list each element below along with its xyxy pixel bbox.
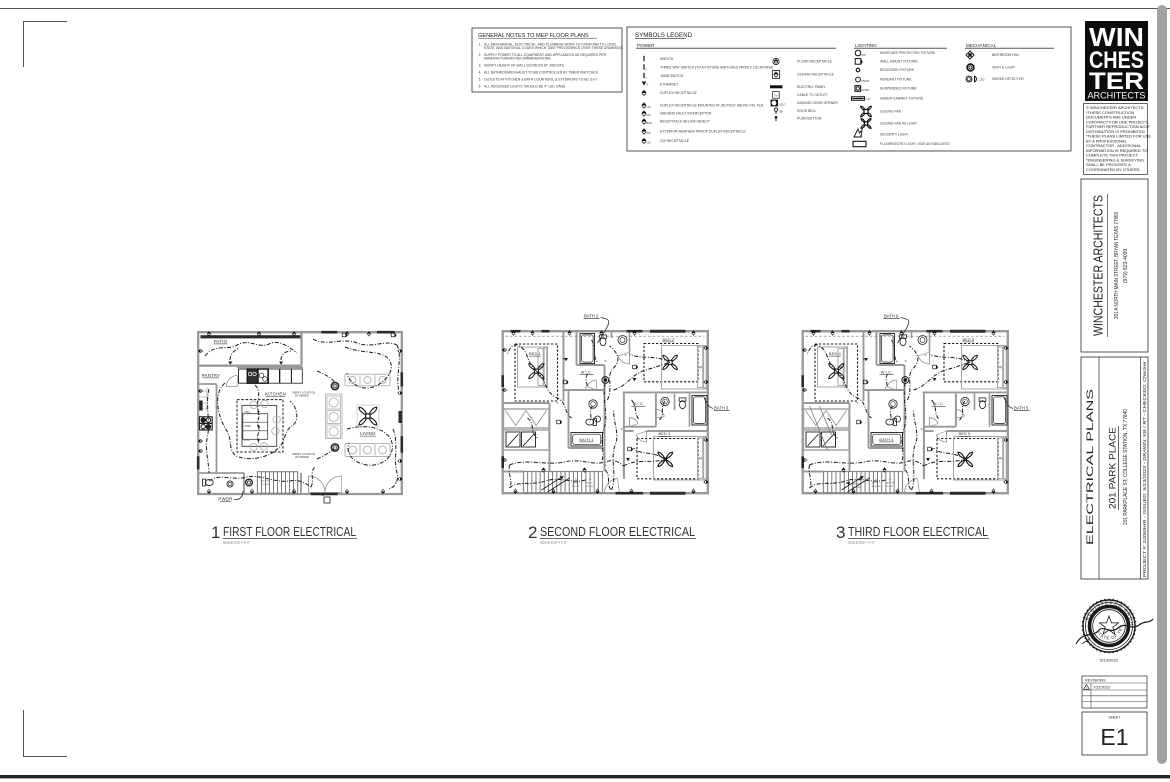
svg-text:BED 3: BED 3 <box>659 432 671 436</box>
svg-text:S: S <box>605 359 607 363</box>
svg-text:ACCESS: ACCESS <box>872 485 881 488</box>
svg-text:FLOOR: FLOOR <box>262 484 270 486</box>
svg-text:4.: 4. <box>479 71 482 75</box>
svg-text:BATH 6: BATH 6 <box>884 314 899 319</box>
svg-text:FLOOR: FLOOR <box>572 486 580 488</box>
svg-text:OUTLETS AT KITCHEN & BATH COUN: OUTLETS AT KITCHEN & BATH COUNTERS, & EX… <box>484 78 598 82</box>
svg-text:ARCHITECTS: ARCHITECTS <box>1088 91 1146 101</box>
svg-text:W/ OWNER: W/ OWNER <box>295 455 309 459</box>
svg-text:BED 2: BED 2 <box>663 338 675 342</box>
svg-text:S: S <box>921 427 923 431</box>
svg-text:KITCHEN: KITCHEN <box>265 392 286 397</box>
svg-text:MP: MP <box>862 53 866 57</box>
svg-text:EXTERIOR WEATHER PROOF DUPLEX: EXTERIOR WEATHER PROOF DUPLEX RECEPTACLE <box>660 130 747 134</box>
svg-text:SCALE 3/16" = 1'-0": SCALE 3/16" = 1'-0" <box>223 541 250 545</box>
svg-text:COORDINATED BY OTHERS.: COORDINATED BY OTHERS. <box>1086 167 1141 172</box>
svg-text:SUSP: SUSP <box>862 88 870 92</box>
svg-text:GDO: GDO <box>779 102 786 106</box>
svg-text:DB: DB <box>779 110 783 114</box>
svg-text:2: 2 <box>528 523 537 542</box>
svg-text:MOISTURE PROTECTED FIXTURE: MOISTURE PROTECTED FIXTURE <box>880 51 936 55</box>
svg-text:BATH 3: BATH 3 <box>714 406 729 411</box>
svg-text:S: S <box>557 401 559 405</box>
svg-text:SECOND: SECOND <box>886 482 895 484</box>
svg-text:SECURITY LIGHT: SECURITY LIGHT <box>880 133 908 137</box>
svg-text:S: S <box>863 357 865 361</box>
svg-text:WINCHESTER ARCHITECTS: WINCHESTER ARCHITECTS <box>1092 195 1106 336</box>
svg-text:201 PARK PLACE: 201 PARK PLACE <box>1108 427 1118 509</box>
svg-text:UC: UC <box>867 97 871 101</box>
svg-text:RECEPTACLE BELOW OBJECT: RECEPTACLE BELOW OBJECT <box>660 120 710 124</box>
svg-text:220 RECEPTACLE: 220 RECEPTACLE <box>660 139 690 143</box>
svg-text:BLW: BLW <box>646 121 652 125</box>
svg-text:WP: WP <box>646 131 650 135</box>
svg-text:S: S <box>925 353 927 357</box>
svg-text:THIRD: THIRD <box>572 482 579 484</box>
svg-text:E: E <box>647 83 649 87</box>
svg-text:BATH 2: BATH 2 <box>584 314 599 319</box>
svg-text:THIRD FLOOR ELECTRICAL: THIRD FLOOR ELECTRICAL <box>848 524 988 539</box>
svg-text:A: A <box>334 446 336 450</box>
svg-text:RECESSED FIXTURE: RECESSED FIXTURE <box>880 68 915 72</box>
svg-text:1: 1 <box>211 523 220 542</box>
svg-text:SCALE 3/16" = 1'-0": SCALE 3/16" = 1'-0" <box>540 541 567 545</box>
svg-text:DUPLEX RECEPTACLE: DUPLEX RECEPTACLE <box>660 91 698 95</box>
svg-text:S: S <box>605 463 607 467</box>
svg-text:BELOW: BELOW <box>853 487 861 489</box>
svg-text:S: S <box>860 135 862 139</box>
svg-text:FLUORESCENT LIGHT, SIZE AS IND: FLUORESCENT LIGHT, SIZE AS INDICATED <box>880 142 950 146</box>
svg-text:TO: TO <box>889 479 892 481</box>
svg-text:VENT & LIGHT: VENT & LIGHT <box>992 66 1015 70</box>
svg-text:FLOOR RECEPTACLE: FLOOR RECEPTACLE <box>797 60 833 64</box>
svg-text:DUPLEX RECEPTACLE MOUNTED AT (: DUPLEX RECEPTACLE MOUNTED AT (NOTED)" AB… <box>660 104 764 108</box>
svg-text:GFI: GFI <box>646 113 651 117</box>
svg-text:SCALE 3/16" = 1'-0": SCALE 3/16" = 1'-0" <box>848 541 875 545</box>
svg-text:3: 3 <box>836 523 845 542</box>
svg-text:PENDANT FIXTURE: PENDANT FIXTURE <box>880 78 912 82</box>
svg-text:201 A NORTH MAIN STREET, BRYAN: 201 A NORTH MAIN STREET, BRYAN TEXAS 778… <box>1114 212 1120 319</box>
svg-text:TO: TO <box>858 480 861 482</box>
svg-text:GARAGE DOOR OPENER: GARAGE DOOR OPENER <box>797 101 838 105</box>
svg-text:SWITCH: SWITCH <box>660 57 674 61</box>
svg-text:ELECTRIC PANEL: ELECTRIC PANEL <box>797 85 826 89</box>
svg-text:SUSPENDED FIXTURE: SUSPENDED FIXTURE <box>880 87 917 91</box>
svg-text:MANUFACTURERS RECOMMENDATIONS.: MANUFACTURERS RECOMMENDATIONS. <box>484 57 551 61</box>
svg-text:S: S <box>905 463 907 467</box>
svg-text:GROUND FAULT INTERCEPTOR: GROUND FAULT INTERCEPTOR <box>660 112 712 116</box>
svg-text:POWER: POWER <box>637 43 655 48</box>
svg-text:3.: 3. <box>479 64 482 68</box>
svg-text:BED 4: BED 4 <box>829 352 841 356</box>
svg-text:SHEET: SHEET <box>1109 716 1122 720</box>
svg-text:BATH 1: BATH 1 <box>579 438 593 442</box>
svg-text:PANTRY: PANTRY <box>202 373 221 378</box>
svg-text:DB: DB <box>321 495 325 497</box>
svg-text:FIRST FLOOR ELECTRICAL: FIRST FLOOR ELECTRICAL <box>223 524 356 539</box>
svg-text:JAMB SWITCH: JAMB SWITCH <box>660 74 684 78</box>
svg-text:LIVING: LIVING <box>360 431 376 436</box>
svg-text:SECOND FLOOR ELECTRICAL: SECOND FLOOR ELECTRICAL <box>540 524 695 539</box>
svg-text:1.: 1. <box>479 43 482 47</box>
svg-text:PREP: PREP <box>245 426 252 428</box>
svg-text:S: S <box>857 401 859 405</box>
svg-text:BED 5: BED 5 <box>959 432 971 436</box>
svg-text:REVISIONS: REVISIONS <box>1085 679 1106 683</box>
svg-text:W.I.C.: W.I.C. <box>881 371 893 375</box>
svg-text:WALL MOUNT FIXTURE: WALL MOUNT FIXTURE <box>880 60 918 64</box>
svg-text:S: S <box>563 357 565 361</box>
svg-text:FIRST: FIRST <box>586 482 593 484</box>
svg-text:CABLE TV OUTLET: CABLE TV OUTLET <box>797 93 828 97</box>
svg-text:BED 6: BED 6 <box>963 338 975 342</box>
svg-text:VERIFY HEIGHT OF WALL SCONCES: VERIFY HEIGHT OF WALL SCONCES AT JOB SIT… <box>484 64 565 68</box>
svg-text:ROOF: ROOF <box>872 482 879 484</box>
svg-text:FLOOR: FLOOR <box>886 486 894 488</box>
svg-text:ALL RECESSED LIGHTS SHOULD BE: ALL RECESSED LIGHTS SHOULD BE 4" LED CAN… <box>484 85 566 89</box>
svg-text:220: 220 <box>646 141 651 145</box>
svg-text:E1: E1 <box>1100 724 1128 750</box>
svg-text:+42: +42 <box>646 105 651 109</box>
svg-text:A: A <box>334 384 336 388</box>
svg-text:SECOND: SECOND <box>261 481 271 483</box>
svg-text:DOOR BELL: DOOR BELL <box>797 109 817 113</box>
svg-text:BATHROOM FAN: BATHROOM FAN <box>992 53 1019 57</box>
svg-text:FRIG: FRIG <box>244 440 250 442</box>
svg-text:S: S <box>625 353 627 357</box>
svg-text:ELECTRICAL PLANS: ELECTRICAL PLANS <box>1085 389 1095 545</box>
svg-text:CEILING FAN: CEILING FAN <box>880 110 902 114</box>
svg-text:MECHANICAL: MECHANICAL <box>966 43 997 48</box>
svg-text:5/13/2023: 5/13/2023 <box>1100 658 1119 663</box>
svg-text:PUSH BUTTON: PUSH BUTTON <box>797 117 822 121</box>
svg-text:PATIO: PATIO <box>214 339 228 344</box>
svg-text:UNDER CABINET FIXTURE: UNDER CABINET FIXTURE <box>880 97 924 101</box>
svg-text:S: S <box>621 427 623 431</box>
svg-text:CSD: CSD <box>979 78 985 82</box>
svg-text:BATH 5: BATH 5 <box>1014 406 1029 411</box>
svg-text:TO: TO <box>589 479 592 481</box>
svg-text:ALL BATHROOM/EXHAUST TO BE CON: ALL BATHROOM/EXHAUST TO BE CONTROLLED BY… <box>484 71 599 75</box>
svg-text:BATH 4: BATH 4 <box>879 438 893 442</box>
svg-text:LIGHTING: LIGHTING <box>855 43 877 48</box>
svg-text:(979) 823-4039: (979) 823-4039 <box>1123 249 1129 283</box>
svg-text:W.I.C.: W.I.C. <box>581 371 593 375</box>
svg-text:PROJECT #: 24069HR - ISSU: PROJECT #: 24069HR - ISSUED: 5/13/2023 -… <box>1142 360 1147 577</box>
svg-text:5.: 5. <box>479 78 482 82</box>
svg-text:W/ OWNER: W/ OWNER <box>295 394 309 398</box>
svg-text:201 PARKPLACE ST, COLLEGE STAT: 201 PARKPLACE ST, COLLEGE STATION, TX 77… <box>1123 409 1129 525</box>
svg-text:2.: 2. <box>479 53 482 57</box>
svg-text:7/22/2023: 7/22/2023 <box>1093 685 1110 689</box>
svg-text:S: S <box>905 359 907 363</box>
svg-text:THREE WAY SWITCH (TO A FIXTURE: THREE WAY SWITCH (TO A FIXTURE SWITCHED … <box>660 66 773 70</box>
svg-text:FLOOR: FLOOR <box>586 486 594 488</box>
svg-text:CEILING FAN W/ LIGHT: CEILING FAN W/ LIGHT <box>880 122 917 126</box>
svg-text:SWITCH: SWITCH <box>853 483 862 485</box>
svg-text:6.: 6. <box>479 85 482 89</box>
svg-text:FRIG: FRIG <box>245 412 251 414</box>
svg-text:PWDR: PWDR <box>218 497 232 502</box>
svg-text:STATE, AND NATIONAL CODES WHIC: STATE, AND NATIONAL CODES WHICH TAKE PRE… <box>484 46 623 50</box>
svg-text:SYMBOLS LEGEND: SYMBOLS LEGEND <box>635 32 693 39</box>
svg-text:SMOKE DETECTOR: SMOKE DETECTOR <box>992 77 1024 81</box>
svg-text:BED 1: BED 1 <box>529 352 541 356</box>
svg-text:TV: TV <box>774 93 778 97</box>
svg-text:PEND: PEND <box>862 79 870 83</box>
svg-text:CEILING RECEPTACLE: CEILING RECEPTACLE <box>797 73 835 77</box>
svg-text:ETHERNET: ETHERNET <box>660 83 678 87</box>
